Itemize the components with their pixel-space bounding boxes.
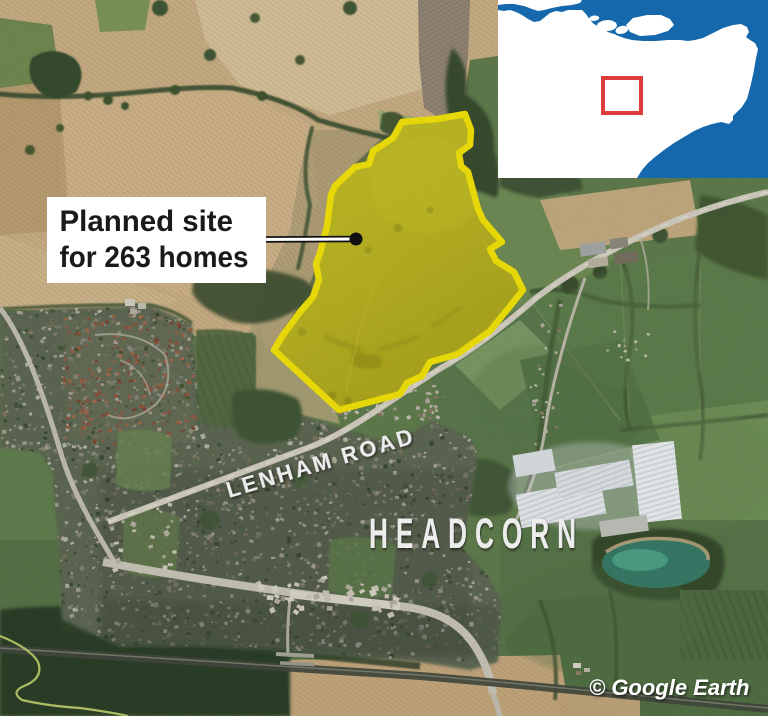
svg-text:for 263 homes: for 263 homes	[60, 241, 249, 274]
svg-text:Planned site: Planned site	[60, 205, 234, 238]
svg-text:© Google Earth: © Google Earth	[589, 675, 749, 700]
